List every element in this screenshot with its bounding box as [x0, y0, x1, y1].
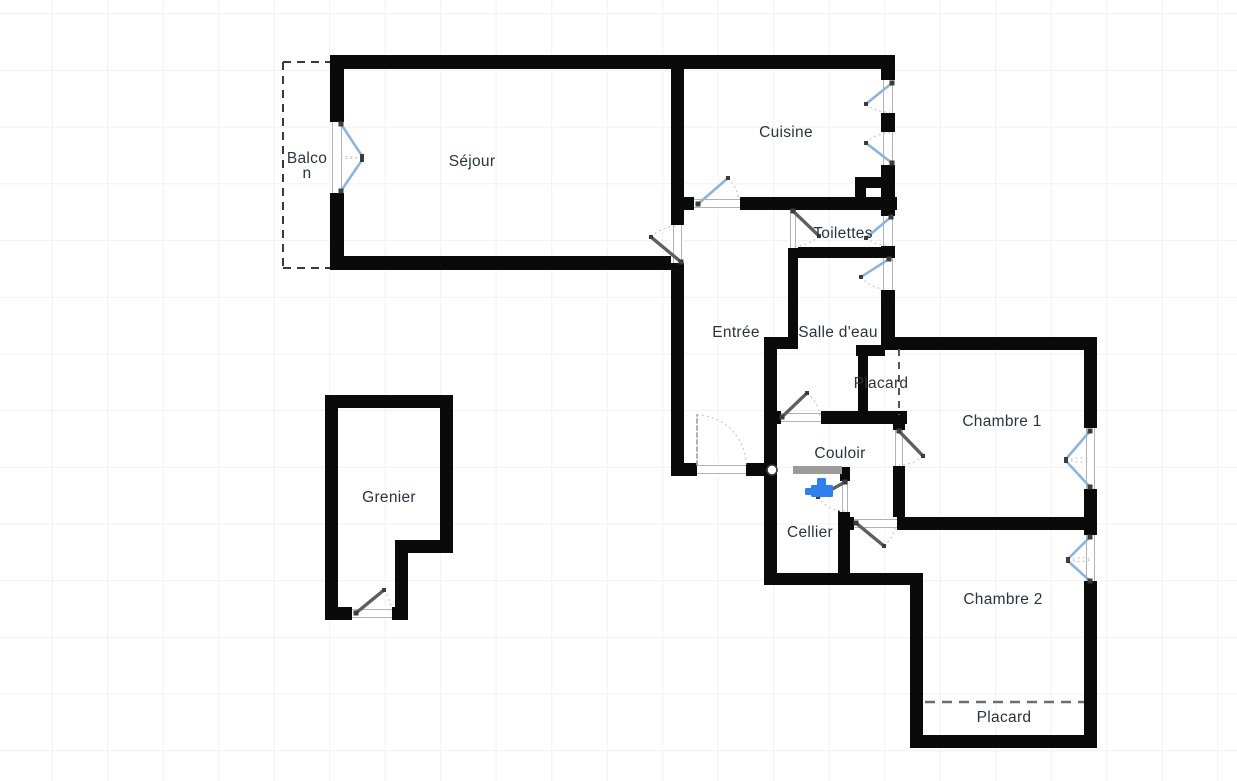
room-label-toilettes[interactable]: Toilettes	[813, 225, 873, 242]
wall-segment[interactable]	[910, 573, 923, 748]
wall-segment[interactable]	[855, 177, 866, 210]
wall-segment[interactable]	[764, 343, 777, 585]
wall-segment[interactable]	[325, 395, 338, 620]
room-label-grenier[interactable]: Grenier	[362, 489, 416, 506]
room-label-entree[interactable]: Entrée	[712, 324, 759, 341]
wall-segment[interactable]	[330, 256, 684, 270]
walls-layer[interactable]	[325, 55, 1097, 748]
plan-svg: BalconSéjourCuisineToilettesEntréeSalle …	[0, 0, 1237, 781]
room-label-placard-1[interactable]: Placard	[854, 375, 909, 392]
wall-segment[interactable]	[330, 55, 344, 124]
balcony-door-opening	[330, 122, 344, 193]
labels-layer[interactable]: BalconSéjourCuisineToilettesEntréeSalle …	[287, 124, 1043, 726]
wall-segment[interactable]	[838, 510, 850, 573]
room-label-balcon[interactable]: Balcon	[287, 150, 327, 182]
door-pivot-circle	[767, 465, 777, 475]
wall-segment[interactable]	[671, 55, 684, 227]
wall-segment[interactable]	[764, 573, 923, 585]
wall-segment[interactable]	[788, 247, 885, 258]
wall-segment[interactable]	[325, 395, 453, 408]
room-label-cuisine[interactable]: Cuisine	[759, 124, 813, 141]
wall-segment[interactable]	[897, 517, 1097, 530]
room-label-cellier[interactable]: Cellier	[787, 524, 833, 541]
entry-door-icon[interactable]	[697, 415, 746, 465]
room-label-chambre-2[interactable]: Chambre 2	[963, 591, 1042, 608]
cuisine-door-opening	[694, 197, 740, 210]
wall-segment[interactable]	[330, 55, 895, 69]
couloir-cellier-passage[interactable]	[793, 466, 842, 474]
room-label-sejour[interactable]: Séjour	[449, 153, 496, 170]
room-label-chambre-1[interactable]: Chambre 1	[962, 413, 1041, 430]
fixtures-layer[interactable]	[767, 465, 842, 497]
wall-segment[interactable]	[671, 261, 684, 476]
wall-segment[interactable]	[440, 395, 453, 553]
entry-door-opening	[697, 463, 746, 476]
wall-segment[interactable]	[856, 345, 885, 356]
room-label-couloir[interactable]: Couloir	[814, 445, 865, 462]
room-label-placard-2[interactable]: Placard	[977, 709, 1032, 726]
wall-segment[interactable]	[883, 337, 1097, 350]
water-tap-icon[interactable]	[805, 478, 833, 497]
wall-segment[interactable]	[910, 735, 1097, 748]
floor-plan-canvas: BalconSéjourCuisineToilettesEntréeSalle …	[0, 0, 1237, 781]
room-label-salle-d-eau[interactable]: Salle d'eau	[798, 324, 878, 341]
